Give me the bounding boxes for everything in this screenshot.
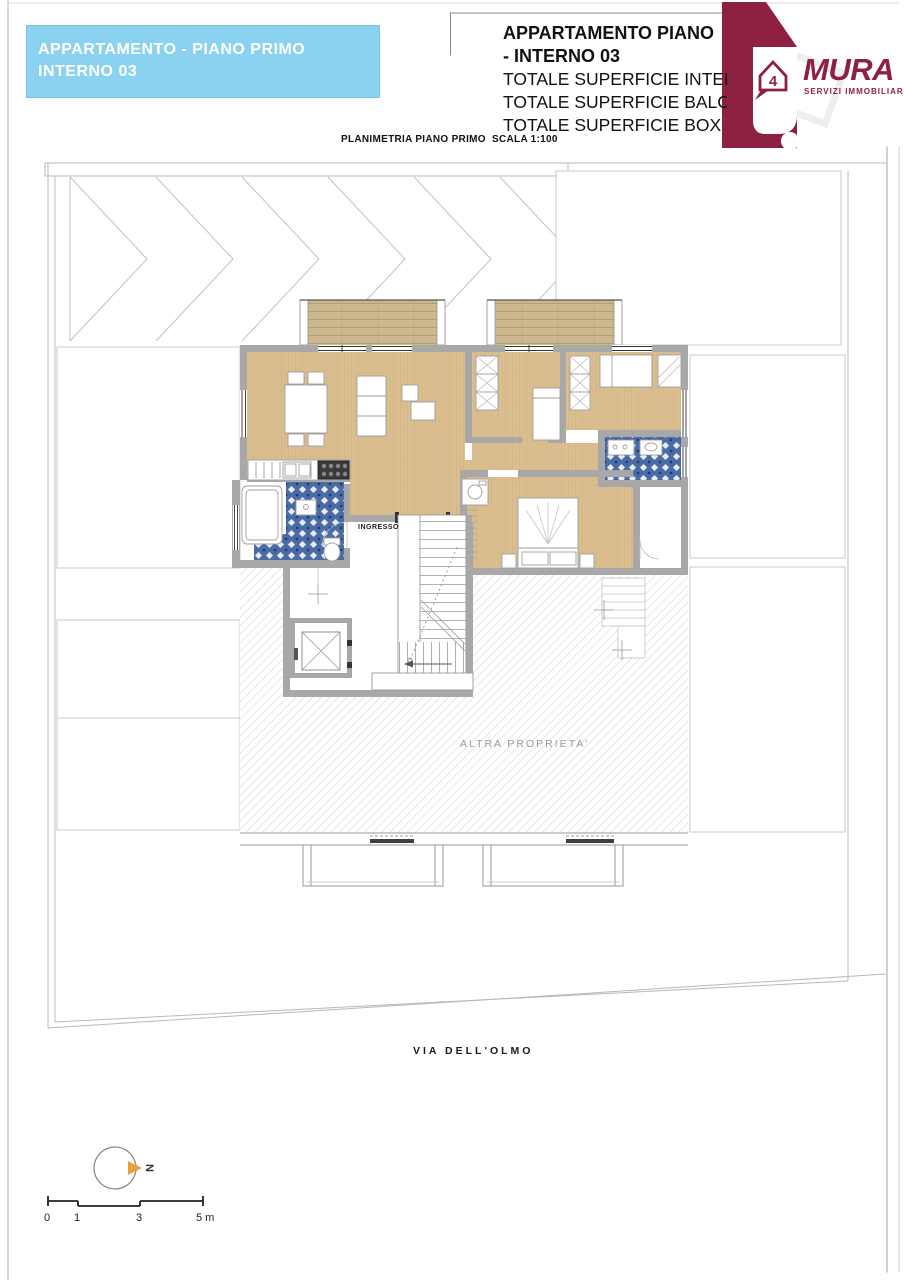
summary-detail-1: TOTALE SUPERFICIE INTER bbox=[503, 68, 727, 91]
summary-title-line1: APPARTAMENTO PIANO bbox=[503, 22, 727, 45]
entrance-label: INGRESSO bbox=[358, 524, 399, 531]
logo-badge-number: 4 bbox=[769, 73, 778, 90]
title-banner: APPARTAMENTO - PIANO PRIMO INTERNO 03 bbox=[26, 25, 380, 98]
scale-bar-labels: 0 1 3 5 m bbox=[44, 1212, 214, 1224]
agency-logo: 4 MURA SERVIZI IMMOBILIARI bbox=[722, 2, 904, 150]
other-property-label: ALTRA PROPRIETA' bbox=[460, 738, 589, 750]
stove bbox=[318, 461, 349, 479]
pillow bbox=[522, 552, 548, 565]
lower-balcony bbox=[303, 845, 443, 886]
dining-table bbox=[285, 385, 327, 433]
floor-plan-canvas: INGRESSO ALTRA PROPRIETA' VIA DELL'OLMO … bbox=[0, 0, 904, 1280]
svg-text:0: 0 bbox=[44, 1212, 50, 1224]
balcony-bedroom bbox=[487, 300, 622, 345]
stair-landing bbox=[372, 673, 473, 690]
toilet bbox=[324, 543, 340, 561]
title-banner-line2: INTERNO 03 bbox=[38, 61, 379, 83]
title-banner-line1: APPARTAMENTO - PIANO PRIMO bbox=[38, 39, 379, 61]
svg-text:3: 3 bbox=[136, 1212, 142, 1224]
adjacent-room bbox=[640, 487, 681, 568]
balcony-living bbox=[300, 300, 445, 345]
bathroom-sink bbox=[608, 440, 634, 455]
single-bed bbox=[533, 388, 560, 440]
svg-text:5 m: 5 m bbox=[196, 1212, 214, 1224]
corner-unit bbox=[658, 355, 681, 387]
summary-block: APPARTAMENTO PIANO - INTERNO 03 TOTALE S… bbox=[503, 22, 727, 142]
nightstand bbox=[502, 554, 516, 568]
single-bed bbox=[600, 355, 652, 387]
staircase bbox=[372, 515, 473, 690]
street-label: VIA DELL'OLMO bbox=[413, 1045, 533, 1057]
scale-bar bbox=[48, 1196, 203, 1206]
lower-balcony bbox=[483, 845, 623, 886]
plan-subtitle: PLANIMETRIA PIANO PRIMO SCALA 1:100 bbox=[341, 134, 558, 145]
sofa bbox=[357, 376, 386, 436]
summary-detail-2: TOTALE SUPERFICIE BALC bbox=[503, 91, 727, 114]
elevator bbox=[290, 618, 352, 678]
nightstand bbox=[580, 554, 594, 568]
north-compass: N bbox=[94, 1147, 155, 1189]
logo-brand-text: MURA bbox=[803, 52, 894, 87]
logo-tagline: SERVIZI IMMOBILIARI bbox=[804, 87, 904, 96]
hall-markers bbox=[308, 568, 328, 604]
svg-text:1: 1 bbox=[74, 1212, 80, 1224]
summary-title-line2: - INTERNO 03 bbox=[503, 45, 727, 68]
kitchen-counter bbox=[248, 460, 350, 480]
floorplan-document-page: INGRESSO ALTRA PROPRIETA' VIA DELL'OLMO … bbox=[0, 0, 904, 1280]
pillow bbox=[550, 552, 576, 565]
building-bottom bbox=[240, 833, 688, 886]
north-letter: N bbox=[143, 1164, 155, 1172]
